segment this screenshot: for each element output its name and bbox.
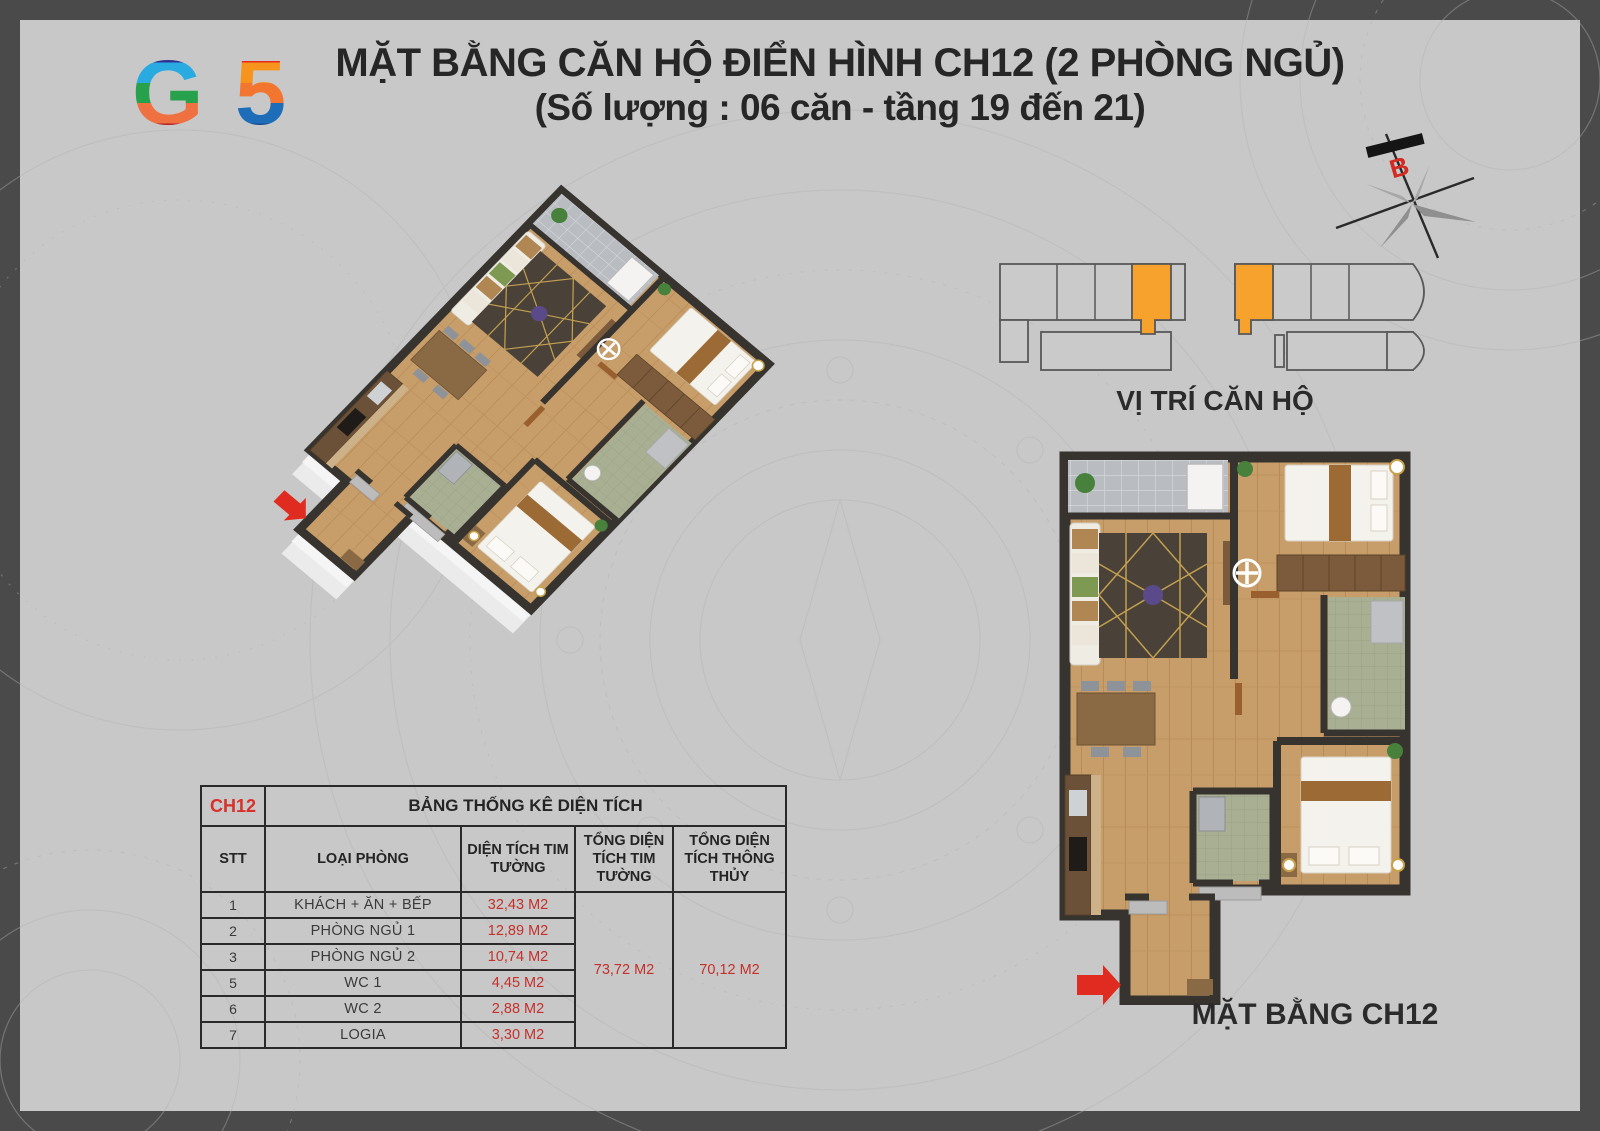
table-row: 1 KHÁCH + ĂN + BẾP 32,43 M2 73,72 M2 70,… [201, 892, 786, 918]
header-room-type: LOẠI PHÒNG [265, 826, 461, 892]
row-area: 4,45 M2 [461, 970, 575, 996]
isometric-floorplan [150, 135, 890, 725]
row-area: 3,30 M2 [461, 1022, 575, 1048]
row-area: 12,89 M2 [461, 918, 575, 944]
row-stt: 7 [201, 1022, 265, 1048]
row-area: 32,43 M2 [461, 892, 575, 918]
row-room: WC 1 [265, 970, 461, 996]
row-stt: 5 [201, 970, 265, 996]
highlighted-unit [1132, 264, 1273, 334]
compass-north-label: B [1386, 150, 1412, 184]
row-stt: 3 [201, 944, 265, 970]
row-stt: 6 [201, 996, 265, 1022]
total-tim-tuong-value: 73,72 M2 [575, 892, 673, 1048]
header-total-thong-thuy: TỔNG DIỆN TÍCH THÔNG THỦY [673, 826, 786, 892]
row-area: 2,88 M2 [461, 996, 575, 1022]
row-room: LOGIA [265, 1022, 461, 1048]
logo-letter-5: 5 [235, 48, 286, 134]
total-thong-thuy-value: 70,12 M2 [673, 892, 786, 1048]
header-stt: STT [201, 826, 265, 892]
title-line-2: (Số lượng : 06 căn - tầng 19 đến 21) [320, 86, 1360, 130]
title-line-1: MẶT BẰNG CĂN HỘ ĐIỂN HÌNH CH12 (2 PHÒNG … [320, 40, 1360, 86]
header-area: DIỆN TÍCH TIM TƯỜNG [461, 826, 575, 892]
compass-icon: B [1328, 126, 1478, 264]
g5-logo: G 5 [130, 48, 330, 134]
unit-code: CH12 [201, 786, 265, 826]
floorplan-2d [1037, 445, 1447, 1005]
header-total-tim-tuong: TỔNG DIỆN TÍCH TIM TƯỜNG [575, 826, 673, 892]
area-statistics-table: CH12 BẢNG THỐNG KÊ DIỆN TÍCH STT LOẠI PH… [200, 785, 787, 1049]
poster: G 5 MẶT BẰNG CĂN HỘ ĐIỂN HÌNH CH12 (2 PH… [0, 0, 1600, 1131]
row-stt: 2 [201, 918, 265, 944]
unit-location-diagram [985, 250, 1435, 378]
row-room: PHÒNG NGỦ 2 [265, 944, 461, 970]
row-area: 10,74 M2 [461, 944, 575, 970]
row-stt: 1 [201, 892, 265, 918]
row-room: KHÁCH + ĂN + BẾP [265, 892, 461, 918]
location-caption: VỊ TRÍ CĂN HỘ [995, 385, 1435, 417]
table-title: BẢNG THỐNG KÊ DIỆN TÍCH [265, 786, 786, 826]
page-title: MẶT BẰNG CĂN HỘ ĐIỂN HÌNH CH12 (2 PHÒNG … [320, 40, 1360, 130]
logo-letter-g: G [132, 48, 204, 134]
row-room: WC 2 [265, 996, 461, 1022]
plan2d-caption: MẶT BẰNG CH12 [1175, 998, 1455, 1032]
row-room: PHÒNG NGỦ 1 [265, 918, 461, 944]
